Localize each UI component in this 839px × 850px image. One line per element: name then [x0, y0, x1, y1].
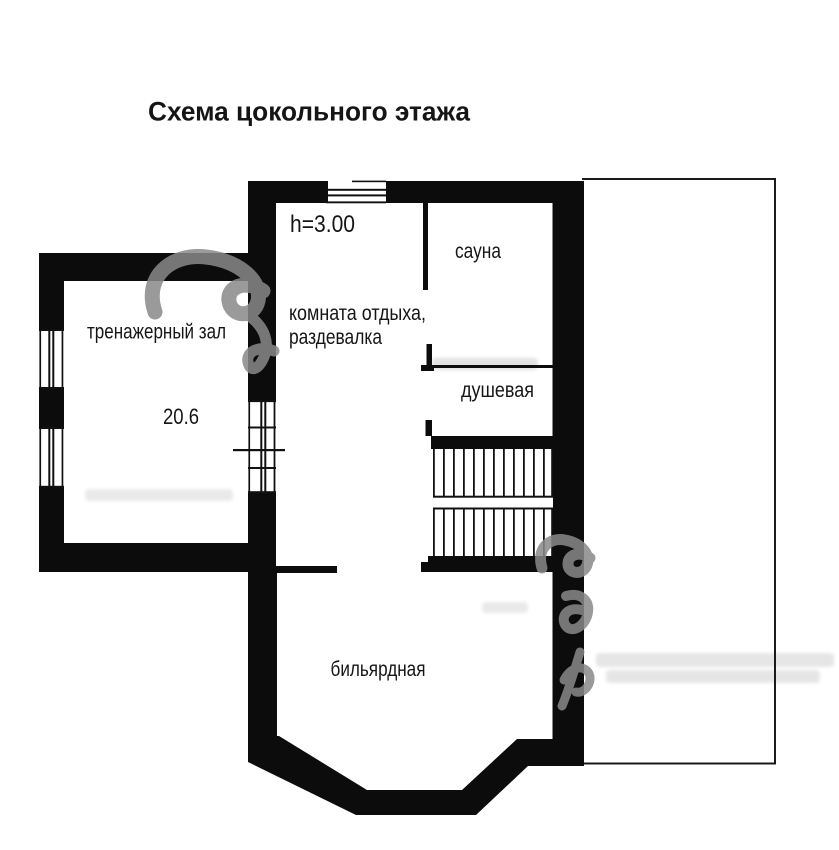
- svg-text:бильярдная: бильярдная: [331, 657, 426, 681]
- svg-text:раздевалка: раздевалка: [289, 325, 382, 349]
- svg-text:Схема цокольного этажа: Схема цокольного этажа: [148, 97, 471, 127]
- svg-text:сауна: сауна: [455, 239, 501, 263]
- svg-text:h=3.00: h=3.00: [290, 211, 355, 238]
- svg-text:20.6: 20.6: [163, 404, 199, 429]
- svg-text:душевая: душевая: [461, 378, 534, 402]
- svg-text:тренажерный зал: тренажерный зал: [87, 320, 226, 344]
- svg-text:комната отдыха,: комната отдыха,: [289, 301, 426, 325]
